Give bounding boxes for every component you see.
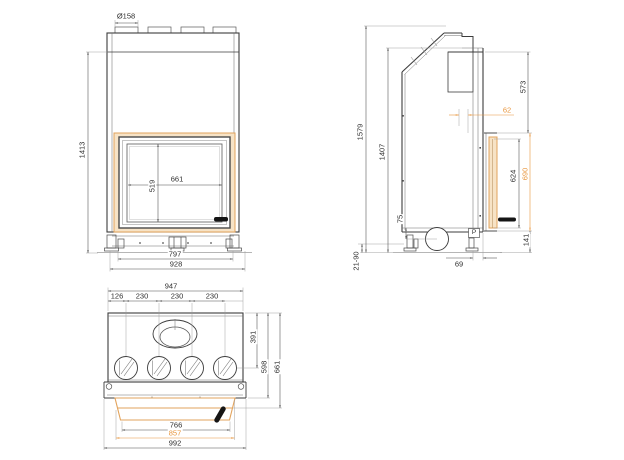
- door-handle-side: [498, 218, 516, 222]
- dim-top-outlet-pitch-1: 230: [135, 292, 150, 300]
- dim-top-casing-width: 947: [164, 282, 179, 290]
- dim-front-base-width: 797: [168, 250, 183, 258]
- base-flange: [104, 382, 246, 400]
- front-view: [97, 27, 252, 253]
- dim-top-outlet-pitch-3: 230: [205, 292, 220, 300]
- dim-top-outlet-offset: 126: [110, 292, 125, 300]
- dim-side-overall-height: 1579: [356, 123, 364, 142]
- dim-front-body-width: 928: [169, 260, 184, 268]
- dim-top-outlet-pitch-2: 230: [170, 292, 185, 300]
- dim-top-flue-center-depth: 391: [249, 330, 257, 345]
- top-view: [104, 313, 246, 424]
- door-handle-front: [214, 217, 228, 222]
- dim-side-front-clearance: 69: [454, 260, 464, 268]
- dim-front-glass-height: 519: [148, 179, 156, 194]
- dim-front-flue-diameter: Ø158: [116, 12, 136, 20]
- drawing-linework: [0, 0, 624, 460]
- dim-side-glass-height: 624: [509, 169, 517, 184]
- hot-air-spigots-top: [115, 357, 237, 380]
- dim-side-leveling-range: 21-90: [352, 250, 360, 271]
- dim-side-top-to-door: 573: [519, 80, 527, 95]
- hot-air-stubs-front: [115, 27, 236, 33]
- dim-side-intake-offset: 75: [396, 214, 404, 224]
- dim-side-door-height: 690: [521, 167, 529, 182]
- dim-top-door-width: 857: [168, 429, 183, 437]
- technical-drawing-canvas: Ø158 1413 661 519 797 928 1579 1407 75 2…: [0, 0, 624, 460]
- dim-side-door-offset: 62: [502, 106, 512, 114]
- side-view: [393, 33, 516, 253]
- dim-front-overall-height: 1413: [78, 141, 86, 160]
- dim-top-overall-depth: 661: [273, 360, 281, 375]
- dim-top-overall-width: 992: [168, 439, 183, 447]
- marker-p-label: P: [471, 230, 477, 237]
- dim-top-casing-depth: 598: [260, 360, 268, 375]
- door-frame-side: [489, 137, 497, 228]
- dim-side-casing-height: 1407: [378, 143, 386, 162]
- dim-front-glass-width: 661: [170, 175, 185, 183]
- damper-box-side: [448, 52, 473, 92]
- dim-side-plinth-height: 141: [522, 233, 530, 248]
